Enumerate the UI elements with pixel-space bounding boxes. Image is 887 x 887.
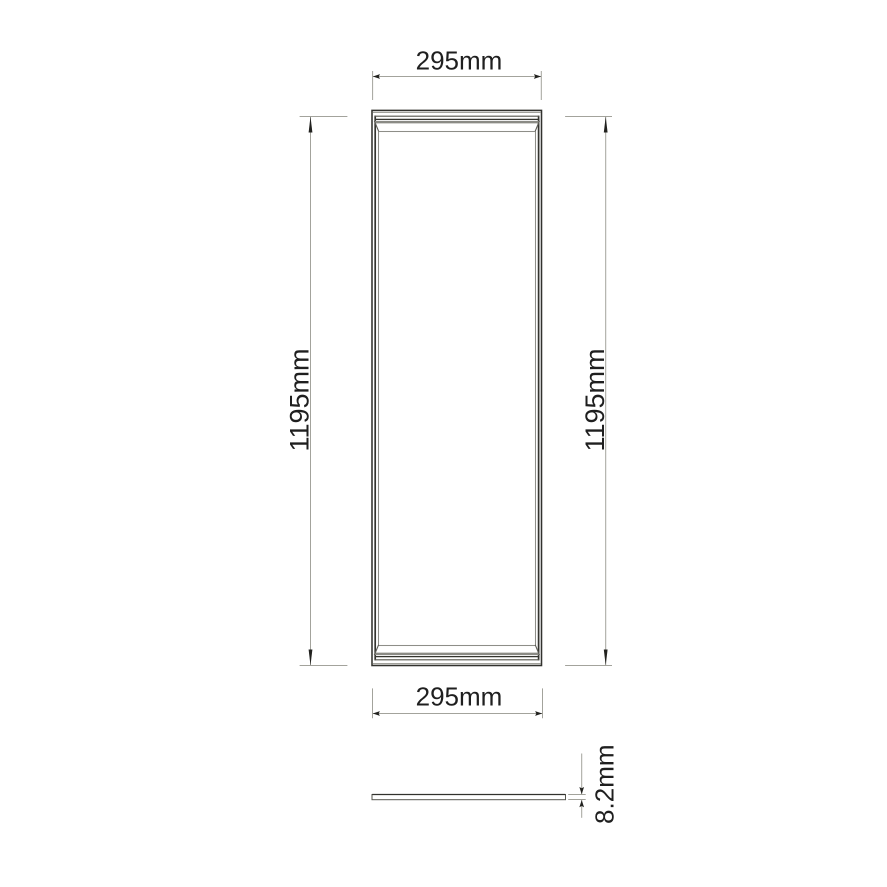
svg-text:1195mm: 1195mm <box>580 348 610 451</box>
svg-text:8.2mm: 8.2mm <box>589 744 619 823</box>
svg-text:295mm: 295mm <box>416 682 503 712</box>
svg-text:295mm: 295mm <box>416 46 503 76</box>
svg-text:1195mm: 1195mm <box>285 348 315 451</box>
